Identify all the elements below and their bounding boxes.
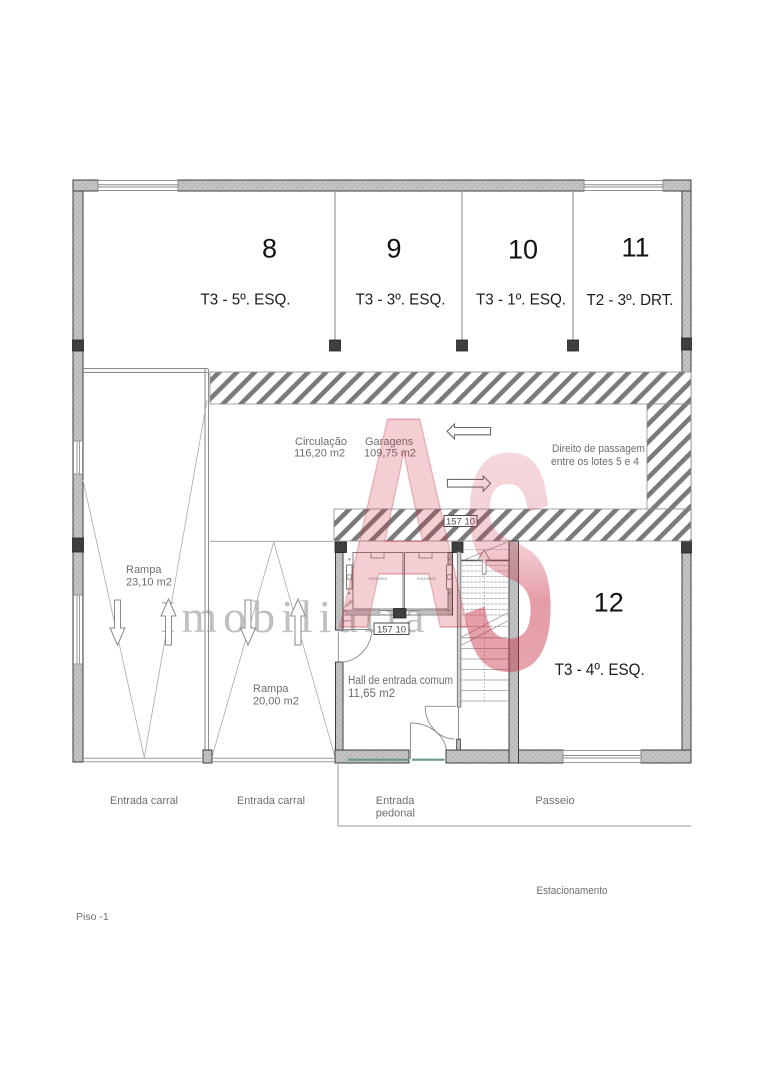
svg-text:Entrada carral: Entrada carral xyxy=(237,795,305,807)
svg-text:pedonal: pedonal xyxy=(376,808,415,820)
svg-text:Rampa: Rampa xyxy=(253,683,289,695)
svg-text:T2 - 3º. DRT.: T2 - 3º. DRT. xyxy=(587,292,674,309)
svg-text:10: 10 xyxy=(508,235,538,265)
svg-text:S: S xyxy=(461,390,556,736)
svg-text:9: 9 xyxy=(386,234,401,264)
svg-text:Rampa: Rampa xyxy=(126,564,162,576)
svg-text:T3 - 3º. ESQ.: T3 - 3º. ESQ. xyxy=(356,291,446,308)
svg-text:23,10 m2: 23,10 m2 xyxy=(126,577,172,589)
svg-text:Piso -1: Piso -1 xyxy=(76,911,109,923)
svg-text:12: 12 xyxy=(594,588,624,618)
svg-text:Entrada: Entrada xyxy=(376,795,415,807)
svg-text:T3 - 4º. ESQ.: T3 - 4º. ESQ. xyxy=(555,661,645,679)
svg-text:Entrada carral: Entrada carral xyxy=(110,795,178,807)
svg-text:A: A xyxy=(335,355,472,691)
svg-text:11: 11 xyxy=(621,233,649,263)
svg-text:T3 - 5º. ESQ.: T3 - 5º. ESQ. xyxy=(201,291,291,308)
svg-text:T3 - 1º. ESQ.: T3 - 1º. ESQ. xyxy=(476,291,566,308)
svg-text:Direito de passagem: Direito de passagem xyxy=(552,443,645,455)
svg-text:20,00 m2: 20,00 m2 xyxy=(253,696,299,708)
svg-text:entre os lotes 5 e 4: entre os lotes 5 e 4 xyxy=(551,456,639,468)
svg-text:8: 8 xyxy=(262,234,277,264)
svg-text:Estacionamento: Estacionamento xyxy=(537,885,608,897)
svg-text:Passeio: Passeio xyxy=(535,795,574,807)
